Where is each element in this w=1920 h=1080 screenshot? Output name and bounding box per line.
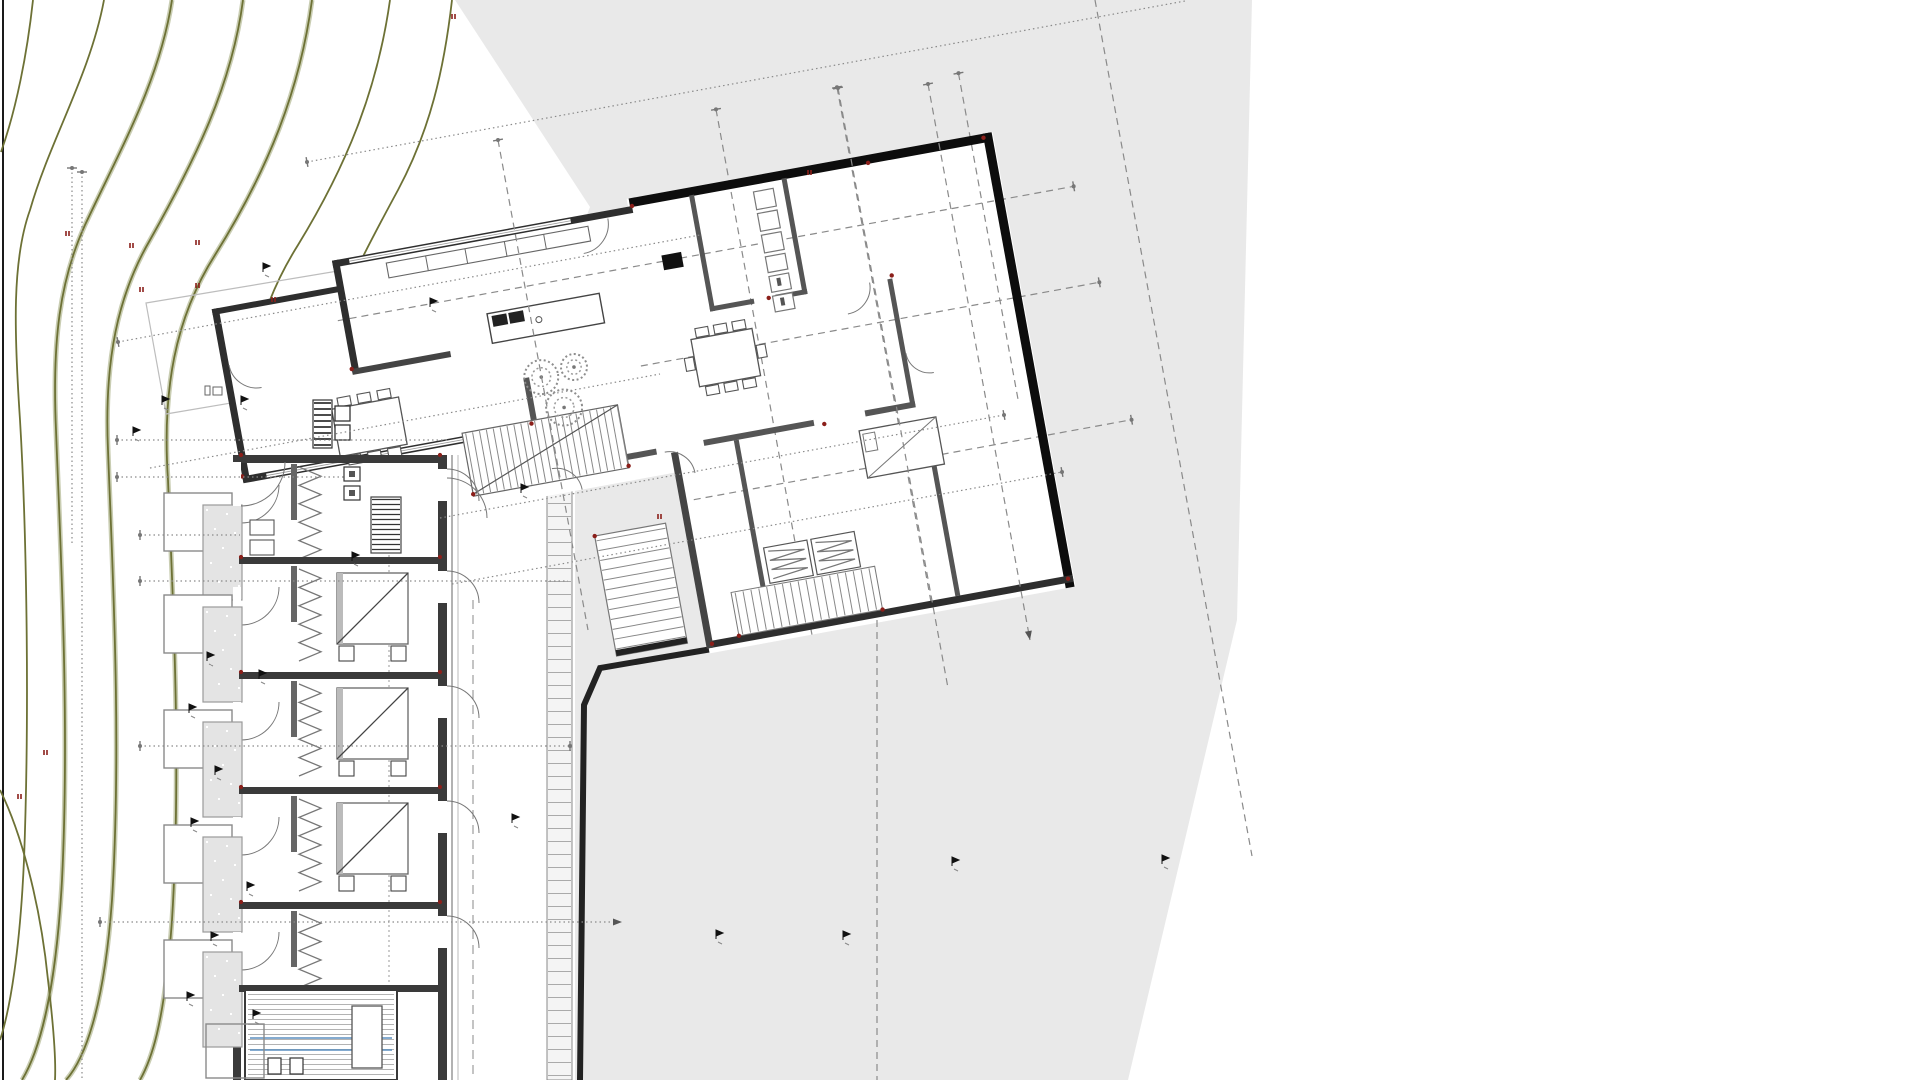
floor-plan-canvas [0,0,1920,1080]
site-plan-svg [0,0,1920,1080]
